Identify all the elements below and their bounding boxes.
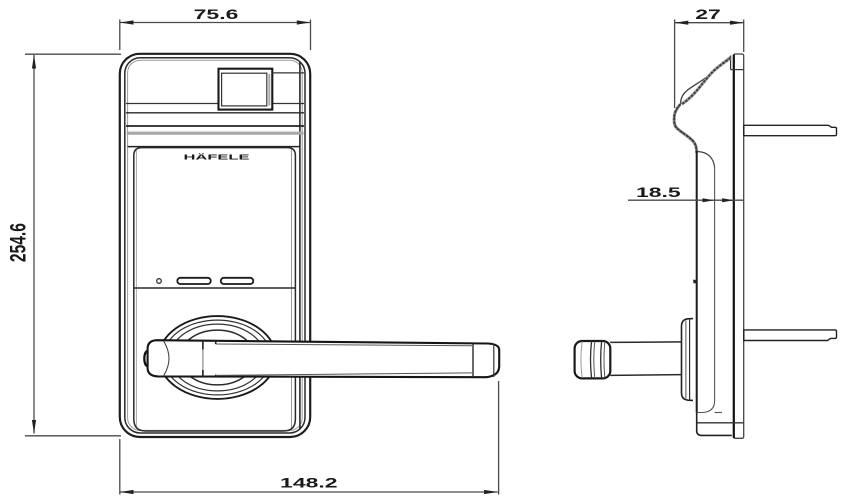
svg-text:254.6: 254.6 <box>5 223 30 262</box>
svg-text:148.2: 148.2 <box>280 476 338 491</box>
svg-text:18.5: 18.5 <box>636 186 681 201</box>
svg-text:27: 27 <box>695 7 721 22</box>
svg-text:75.6: 75.6 <box>194 7 239 22</box>
svg-text:HÄFELE: HÄFELE <box>184 153 250 161</box>
